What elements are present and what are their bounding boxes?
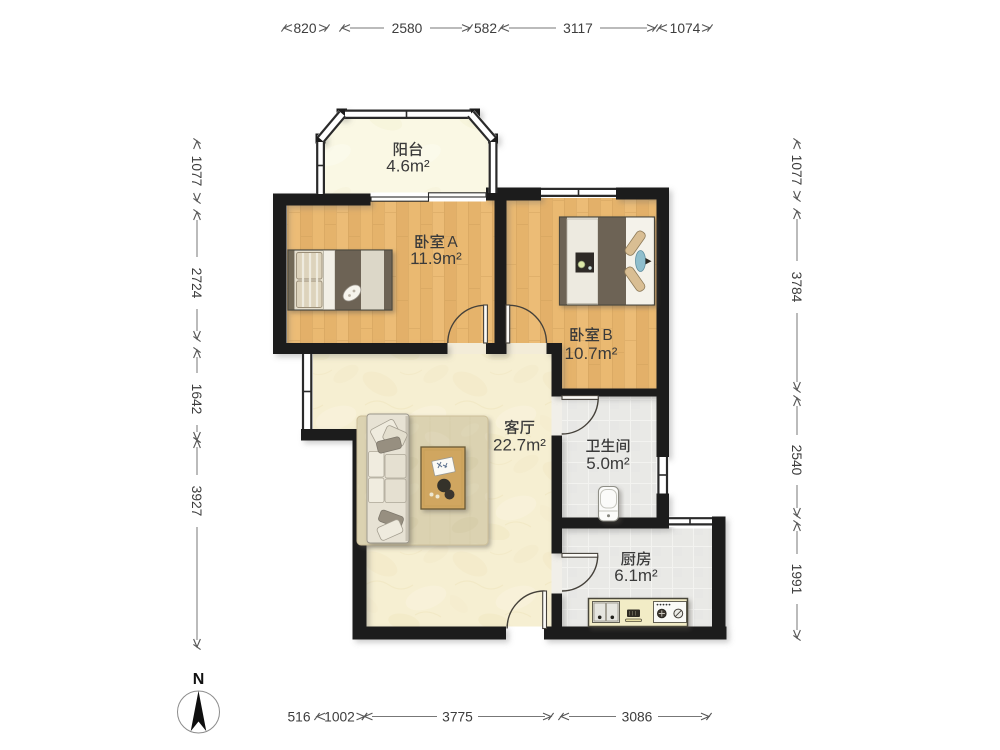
svg-text:2540: 2540 (789, 445, 804, 476)
svg-text:3117: 3117 (563, 21, 593, 36)
svg-text:22.7m²: 22.7m² (493, 436, 546, 455)
svg-text:6.1m²: 6.1m² (614, 566, 658, 585)
svg-text:10.7m²: 10.7m² (565, 344, 618, 363)
svg-text:3775: 3775 (442, 709, 473, 724)
svg-text:516: 516 (287, 709, 310, 724)
svg-text:1991: 1991 (789, 564, 804, 595)
svg-text:1074: 1074 (670, 21, 701, 36)
svg-text:5.0m²: 5.0m² (586, 454, 630, 473)
svg-text:4.6m²: 4.6m² (386, 157, 430, 176)
svg-text:2580: 2580 (392, 21, 423, 36)
svg-text:2724: 2724 (189, 268, 204, 299)
svg-text:582: 582 (474, 21, 497, 36)
svg-text:3784: 3784 (789, 272, 804, 303)
svg-text:1002: 1002 (324, 709, 355, 724)
svg-text:820: 820 (293, 21, 316, 36)
svg-text:N: N (193, 671, 205, 688)
svg-text:1642: 1642 (189, 384, 204, 415)
svg-text:3927: 3927 (189, 486, 204, 517)
svg-text:11.9m²: 11.9m² (410, 249, 462, 268)
svg-text:3086: 3086 (622, 709, 653, 724)
svg-text:1077: 1077 (189, 156, 204, 187)
svg-text:B: B (602, 327, 612, 344)
svg-text:1077: 1077 (789, 155, 804, 186)
